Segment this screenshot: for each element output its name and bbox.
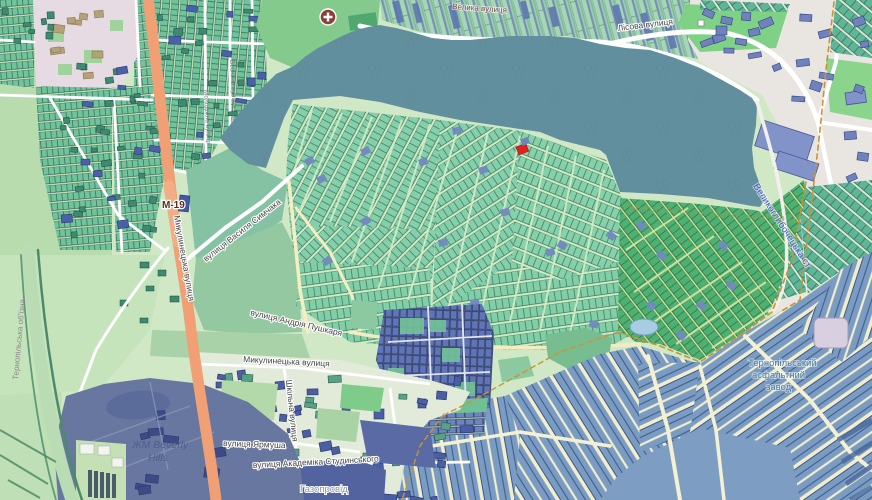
svg-text:Hills: Hills: [148, 452, 169, 464]
svg-text:Газопровід: Газопровід: [300, 484, 348, 495]
svg-text:асфальтний: асфальтний: [752, 370, 805, 381]
svg-text:М-19: М-19: [162, 200, 185, 211]
svg-text:Тернопільський: Тернопільський: [748, 358, 817, 369]
svg-text:ЖМ Beverly: ЖМ Beverly: [131, 439, 189, 451]
svg-text:завод: завод: [766, 382, 792, 393]
